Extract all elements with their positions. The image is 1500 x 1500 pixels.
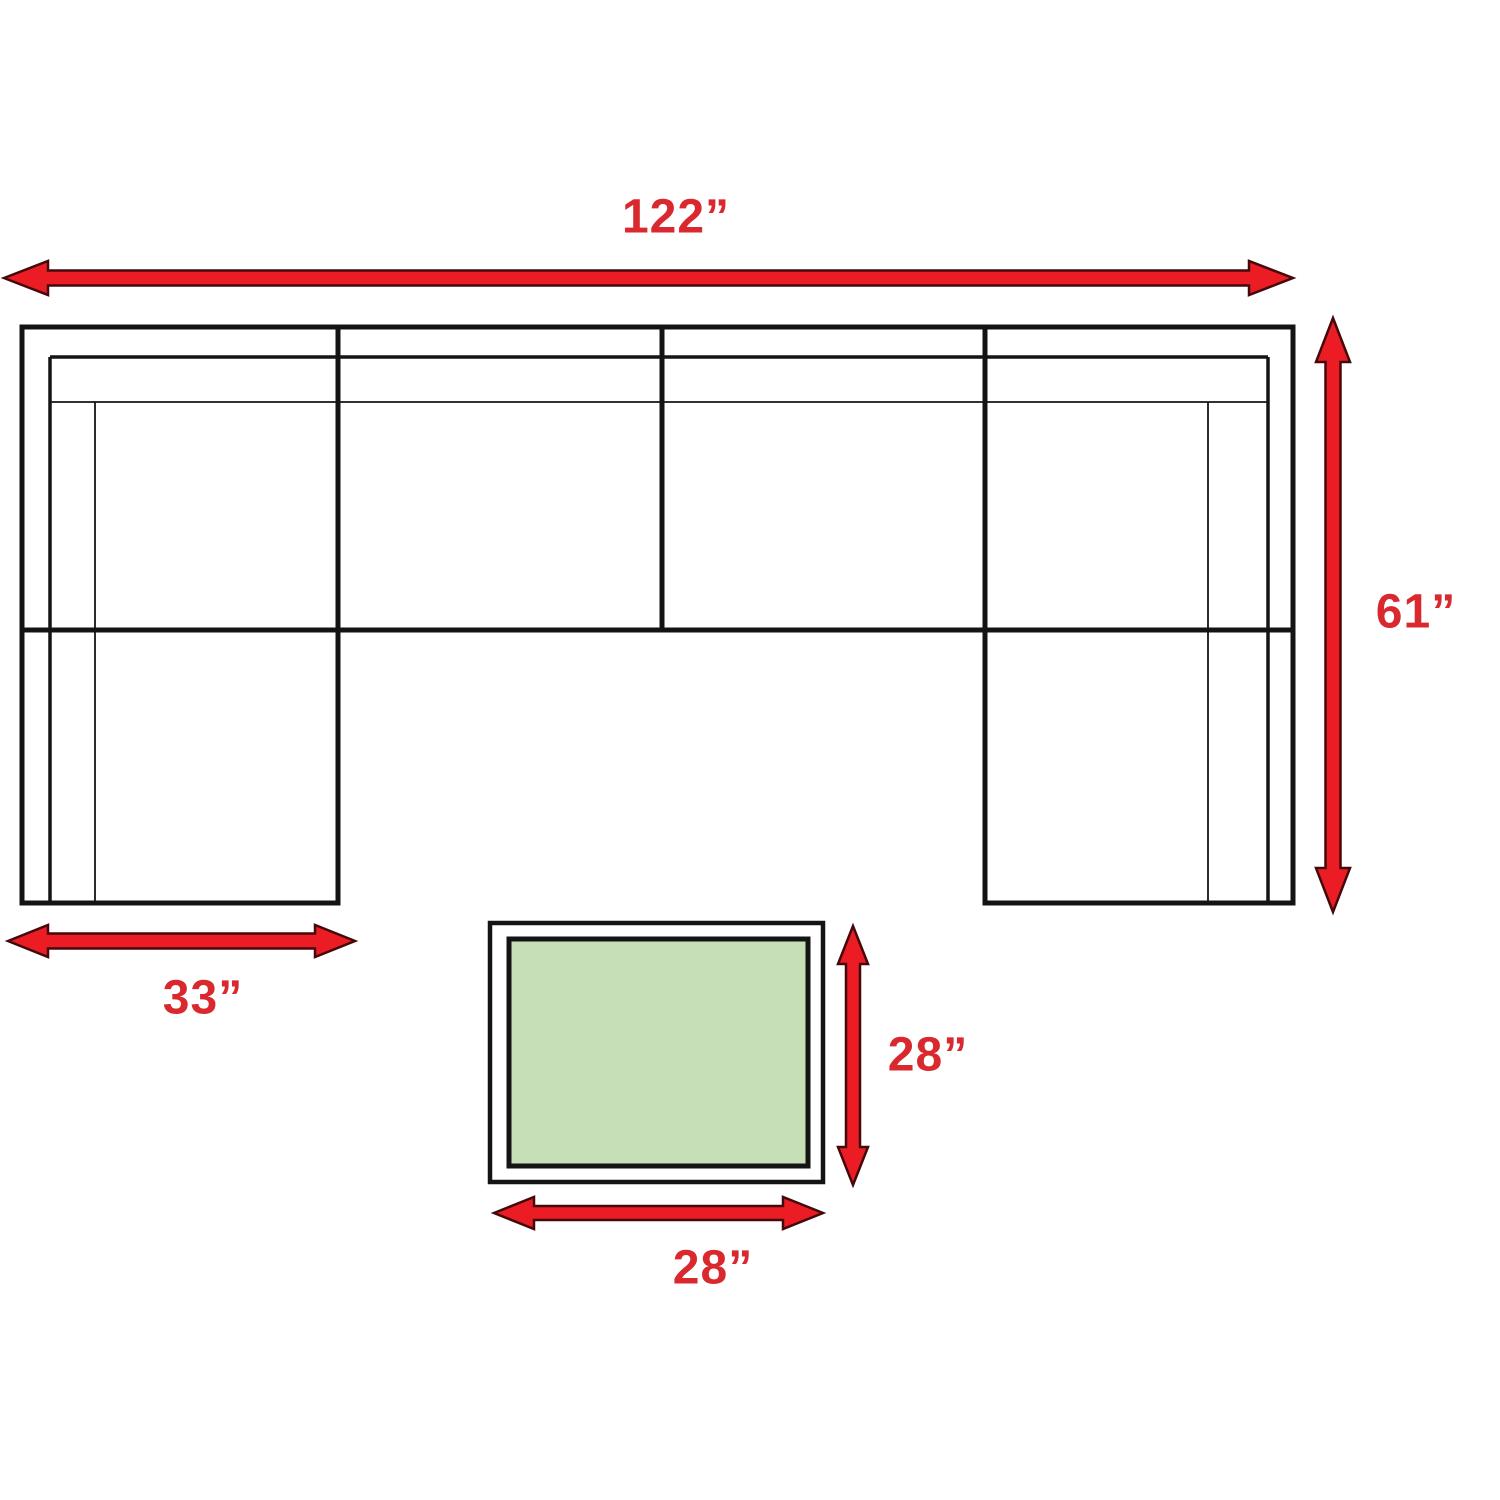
coffee-table-top [509,939,808,1166]
table-depth-arrow [838,926,868,1185]
sectional-sofa-outline [22,327,1293,903]
dimension-label-sofa-width: 122” [622,190,730,245]
dimension-label-table-depth: 28” [888,1028,968,1083]
dimension-label-table-width: 28” [673,1241,753,1296]
dimension-label-sofa-depth: 61” [1376,585,1456,640]
dimension-label-chaise-width: 33” [163,971,243,1026]
chaise-width-arrow [8,925,355,957]
sofa-width-arrow [4,261,1293,295]
coffee-table [490,923,823,1182]
sofa-outer-outline [22,327,1293,903]
sofa-cushion-lines [50,402,1268,903]
sofa-depth-arrow [1316,318,1350,912]
table-width-arrow [494,1197,823,1229]
dimension-diagram: 122” 61” 33” 28” 28” [0,0,1500,1500]
